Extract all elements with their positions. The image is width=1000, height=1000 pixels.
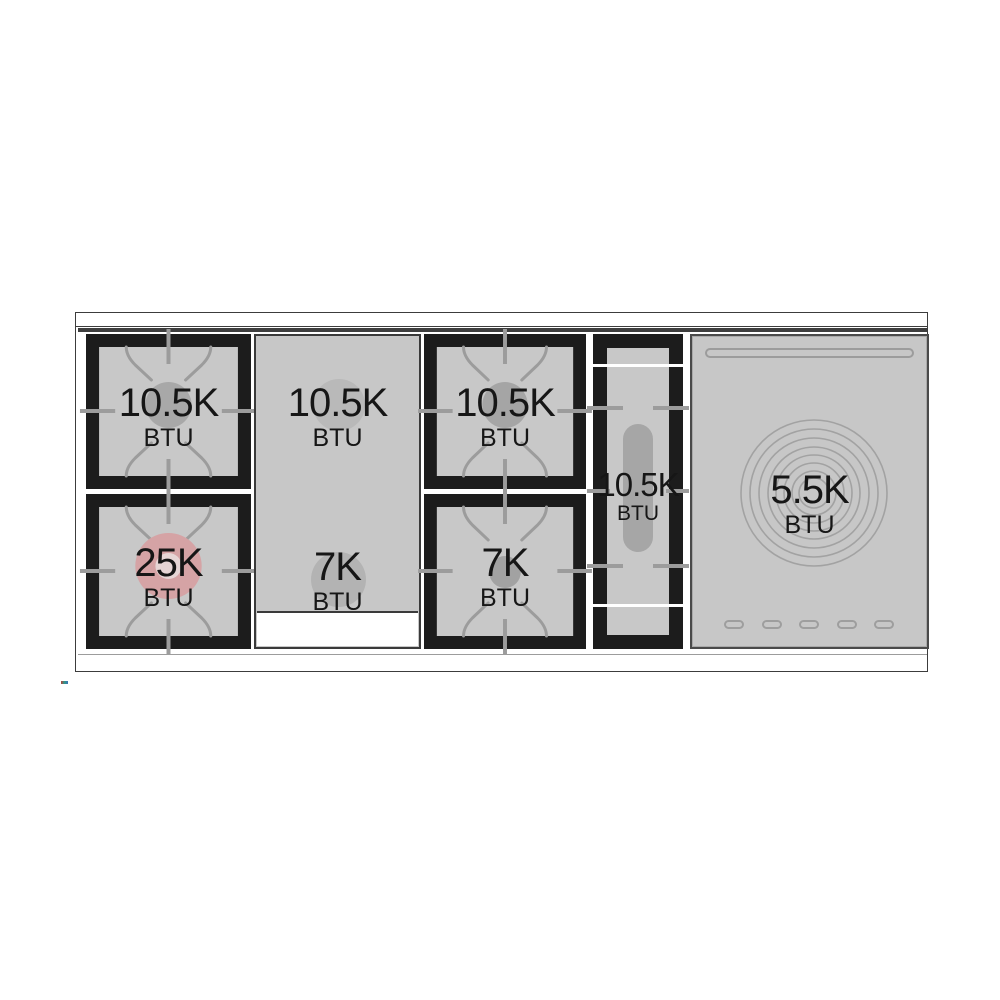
gas-burner-left-front: 25K BTU xyxy=(86,494,251,649)
grate-graphic xyxy=(424,494,586,649)
back-ledge xyxy=(76,313,927,327)
burner-zone-center: 10.5K BTU xyxy=(424,334,586,649)
oval-burner-graphic xyxy=(593,334,683,649)
burner-flame-circle-core xyxy=(155,553,181,579)
simmer-plate-zone: 5.5K BTU xyxy=(690,334,929,649)
control-indicator-dash xyxy=(724,620,744,629)
griddle-burner-circle-front xyxy=(311,552,366,607)
control-indicator-dash xyxy=(874,620,894,629)
griddle-zone: 10.5K BTU 7K BTU xyxy=(254,334,421,649)
gas-burner-center-rear: 10.5K BTU xyxy=(424,334,586,489)
grate-graphic xyxy=(86,494,251,649)
oval-burner-element xyxy=(623,424,653,552)
cooktop-surface: 10.5K BTU xyxy=(78,328,927,655)
burner-flame-circle xyxy=(145,382,191,428)
control-indicator-dash xyxy=(837,620,857,629)
control-indicator-dash xyxy=(762,620,782,629)
grate-graphic xyxy=(86,334,251,489)
burner-flame-circle xyxy=(489,556,521,588)
griddle-burner-circle-rear xyxy=(313,379,365,431)
range-top-outline: 10.5K BTU xyxy=(75,312,928,672)
griddle-handle-area xyxy=(257,611,418,646)
burner-zone-left: 10.5K BTU xyxy=(86,334,251,649)
watermark-artifact xyxy=(61,681,68,684)
gas-burner-center-front: 7K BTU xyxy=(424,494,586,649)
gas-burner-left-rear: 10.5K BTU xyxy=(86,334,251,489)
control-indicator-dash xyxy=(799,620,819,629)
simmer-rings xyxy=(692,336,931,651)
oval-burner-zone: 10.5K BTU xyxy=(593,334,683,649)
cooktop-diagram: 10.5K BTU xyxy=(0,0,1000,1000)
burner-flame-circle xyxy=(482,382,527,428)
grate-graphic xyxy=(424,334,586,489)
